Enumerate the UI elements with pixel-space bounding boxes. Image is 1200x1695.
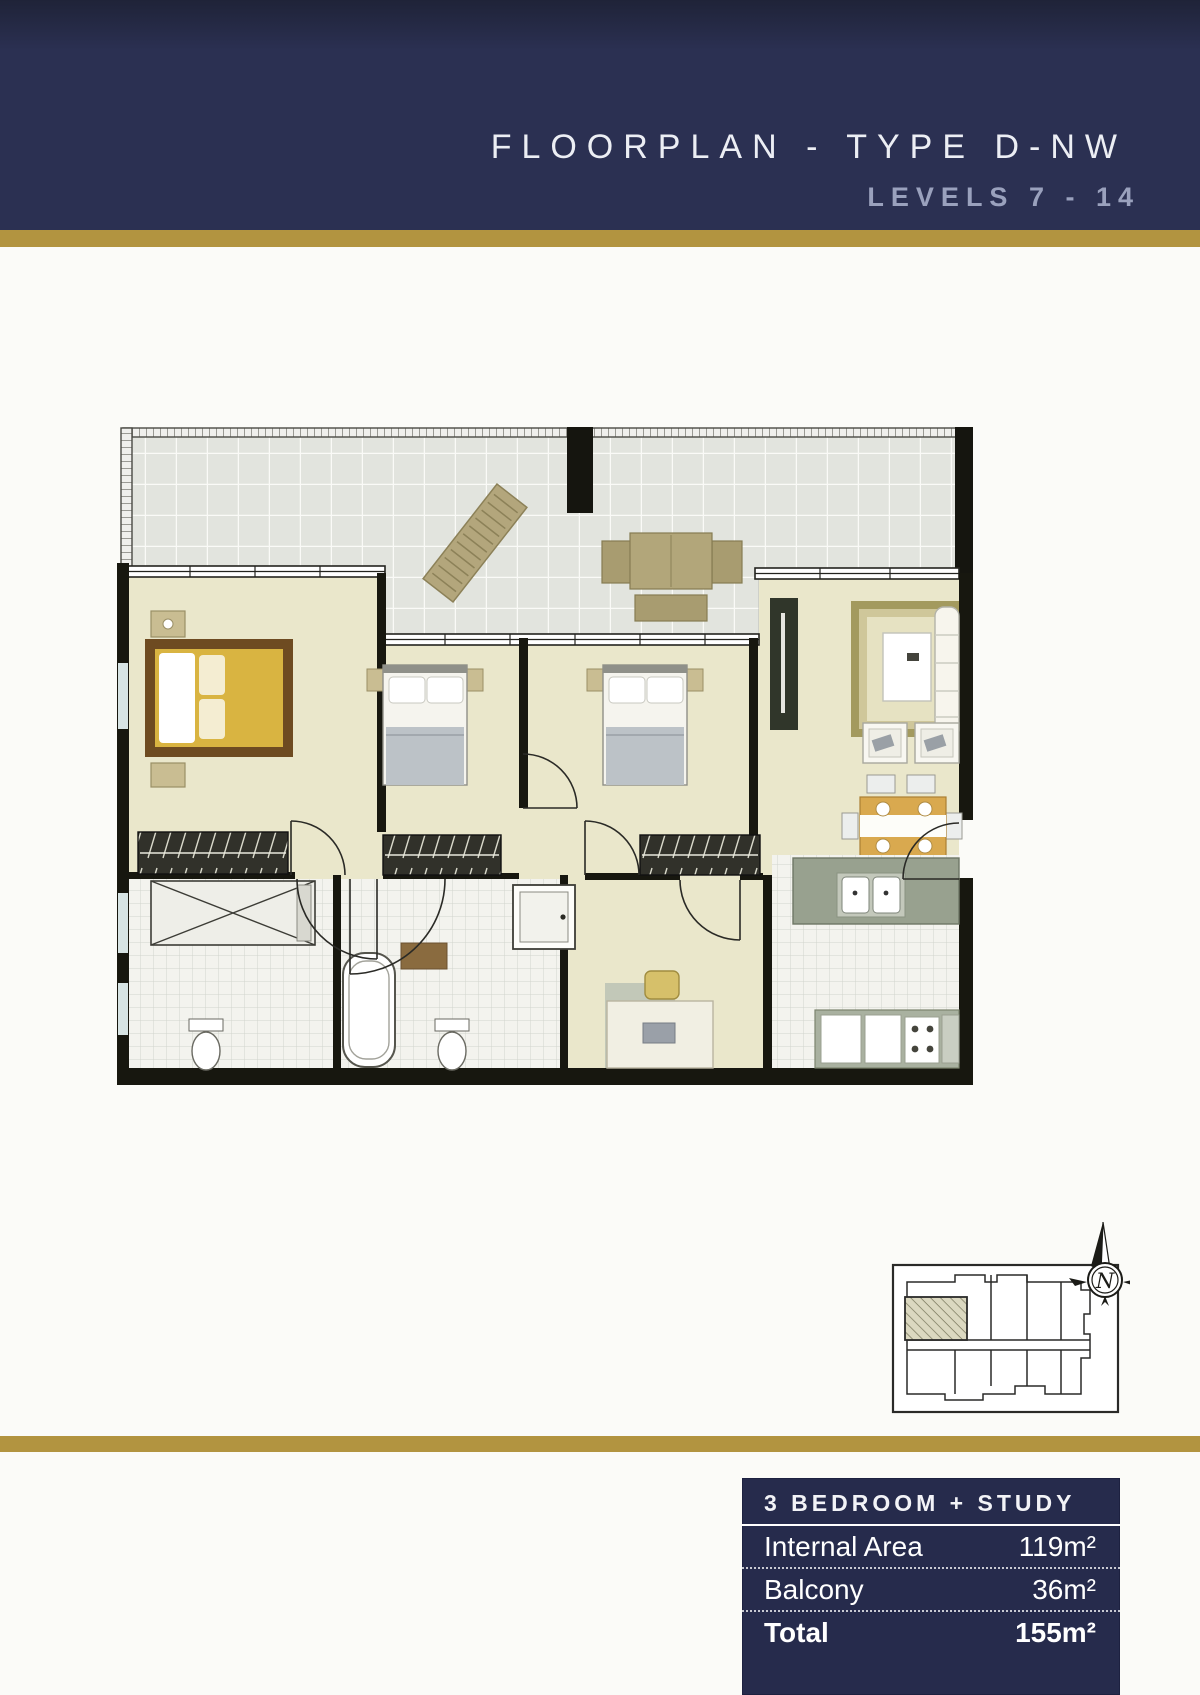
oven-icon (865, 1015, 901, 1063)
row-label: Total (764, 1617, 829, 1649)
floorplan-svg (115, 423, 975, 1098)
wall-bed3-living (749, 638, 758, 868)
chair-icon (946, 813, 962, 839)
kitchen-island-icon (793, 858, 959, 924)
levels-label: LEVELS 7 - 14 (867, 182, 1140, 213)
bathroom (341, 879, 575, 1070)
kitchen-counter-icon (815, 1010, 959, 1068)
row-value: 36m² (1032, 1574, 1096, 1606)
gold-rule-top (0, 230, 1200, 247)
wall-bottom (117, 1068, 973, 1085)
toilet-icon (189, 1019, 223, 1070)
wall-top-right (955, 427, 973, 577)
master-bedroom (138, 611, 293, 874)
cooktop-icon (905, 1017, 939, 1063)
toilet-icon (435, 1019, 469, 1070)
window-left-2 (118, 893, 128, 953)
desk-chair-icon (645, 971, 679, 999)
table-row-total: Total 155m² (742, 1612, 1120, 1653)
desk-monitor (643, 1023, 675, 1043)
bed-icon (383, 665, 467, 785)
laundry-cupboard-icon (513, 885, 575, 949)
armchair-icon (863, 723, 907, 763)
bed-icon (603, 665, 687, 785)
window-living (755, 568, 959, 579)
fridge-icon (821, 1015, 861, 1063)
header-band: FLOORPLAN - TYPE D-NW LEVELS 7 - 14 (0, 0, 1200, 230)
kitchen (772, 855, 959, 1068)
balcony-pier (567, 427, 593, 513)
wall-ensuite-bath (333, 875, 341, 1073)
coffee-table-icon (883, 633, 931, 701)
floorplan-drawing (115, 423, 975, 1098)
vanity-icon (401, 943, 447, 969)
shower-icon (151, 881, 315, 945)
page-title: FLOORPLAN - TYPE D-NW (491, 128, 1127, 167)
row-label: Balcony (764, 1574, 864, 1606)
summary-table: 3 BEDROOM + STUDY Internal Area 119m² Ba… (742, 1478, 1120, 1695)
table-row-balcony: Balcony 36m² (742, 1569, 1120, 1612)
window-left-3 (118, 983, 128, 1035)
window-bedrooms (381, 634, 759, 645)
nightstand-icon (151, 763, 185, 787)
key-plan: N (885, 1222, 1130, 1417)
gold-rule-bottom (0, 1436, 1200, 1452)
armchair-icon (915, 723, 959, 763)
unit-highlight-hatched (905, 1297, 967, 1340)
brochure-page: FLOORPLAN - TYPE D-NW LEVELS 7 - 14 (0, 0, 1200, 1695)
summary-table-header: 3 BEDROOM + STUDY (742, 1478, 1120, 1526)
key-plan-svg: N (885, 1222, 1130, 1417)
table-row-internal-area: Internal Area 119m² (742, 1526, 1120, 1569)
balcony-rail-top (123, 428, 967, 437)
chair-icon (907, 775, 935, 793)
wall-bed2-bed3 (519, 638, 528, 808)
window-master (127, 566, 385, 577)
wall-study-kitchen (763, 875, 772, 1073)
row-label: Internal Area (764, 1531, 923, 1563)
window-left-1 (118, 663, 128, 729)
north-label: N (1095, 1269, 1115, 1293)
chair-icon (867, 775, 895, 793)
row-value: 155m² (1015, 1617, 1096, 1649)
sofa-icon (935, 607, 959, 739)
row-value: 119m² (1019, 1531, 1096, 1563)
chair-icon (842, 813, 858, 839)
balcony-rail-left (121, 428, 132, 569)
